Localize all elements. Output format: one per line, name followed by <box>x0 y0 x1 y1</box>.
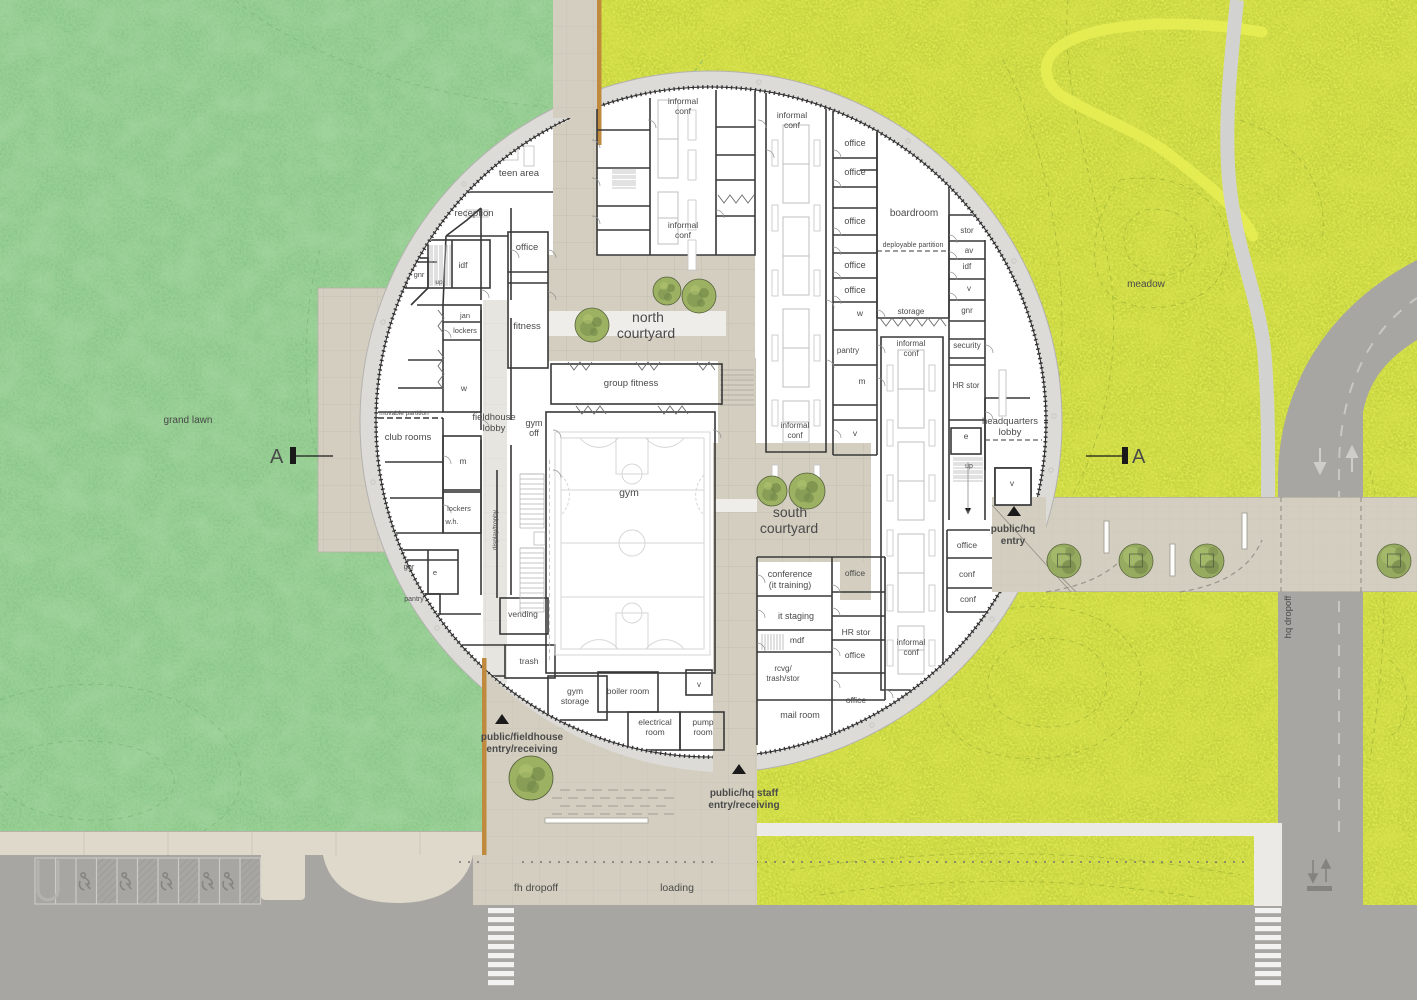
svg-text:lobby: lobby <box>483 423 506 434</box>
svg-text:off: off <box>529 428 539 438</box>
svg-text:fitness: fitness <box>513 321 541 332</box>
svg-text:office: office <box>844 167 865 177</box>
svg-text:room: room <box>645 727 664 737</box>
svg-text:v: v <box>967 284 971 293</box>
svg-text:informal: informal <box>897 339 926 348</box>
svg-text:boiler room: boiler room <box>607 686 650 696</box>
svg-text:south: south <box>773 504 807 520</box>
svg-text:vending: vending <box>508 609 538 619</box>
svg-text:w.h.: w.h. <box>444 517 458 526</box>
svg-text:entry/receiving: entry/receiving <box>708 800 779 811</box>
svg-text:lobby: lobby <box>999 427 1022 438</box>
svg-text:v: v <box>697 680 701 689</box>
svg-text:HR stor: HR stor <box>952 381 979 390</box>
svg-text:conf: conf <box>675 106 692 116</box>
svg-text:office: office <box>516 242 539 253</box>
svg-text:gym: gym <box>619 487 639 499</box>
svg-text:courtyard: courtyard <box>760 520 818 536</box>
svg-text:w: w <box>460 383 468 393</box>
svg-text:display/trophy: display/trophy <box>492 509 499 550</box>
svg-text:conf: conf <box>903 648 919 657</box>
svg-text:pump: pump <box>692 717 714 727</box>
svg-text:(it training): (it training) <box>769 580 812 590</box>
svg-text:room: room <box>693 727 712 737</box>
svg-text:office: office <box>844 216 865 226</box>
svg-text:gym: gym <box>525 418 542 428</box>
svg-text:entry: entry <box>1001 536 1026 547</box>
svg-text:w: w <box>856 308 864 318</box>
svg-text:security: security <box>953 341 981 350</box>
svg-text:office: office <box>845 568 865 578</box>
svg-text:gnr: gnr <box>404 562 415 571</box>
svg-text:jan: jan <box>459 311 470 320</box>
svg-text:av: av <box>965 246 973 255</box>
svg-text:club rooms: club rooms <box>385 432 432 443</box>
svg-text:m: m <box>459 456 466 466</box>
svg-text:headquarters: headquarters <box>982 416 1038 427</box>
svg-text:A: A <box>1132 446 1146 468</box>
svg-text:public/hq staff: public/hq staff <box>710 788 779 799</box>
svg-text:conf: conf <box>675 230 692 240</box>
svg-text:gnr: gnr <box>961 306 973 315</box>
svg-text:rcvg/: rcvg/ <box>774 664 792 673</box>
svg-text:conf: conf <box>784 120 801 130</box>
svg-text:trash: trash <box>520 656 539 666</box>
svg-text:mdf: mdf <box>790 635 805 645</box>
svg-text:up: up <box>965 463 973 470</box>
svg-text:boardroom: boardroom <box>890 208 938 219</box>
svg-text:office: office <box>844 260 865 270</box>
svg-text:m: m <box>858 376 865 386</box>
svg-text:fieldhouse: fieldhouse <box>472 412 515 423</box>
svg-text:fh dropoff: fh dropoff <box>514 882 558 894</box>
svg-text:idf: idf <box>963 262 972 271</box>
svg-text:trash/stor: trash/stor <box>766 674 800 683</box>
svg-text:entry/receiving: entry/receiving <box>486 744 557 755</box>
svg-text:conf: conf <box>960 594 977 604</box>
svg-text:A: A <box>270 446 284 468</box>
svg-text:conf: conf <box>959 569 976 579</box>
svg-text:it staging: it staging <box>778 611 814 621</box>
svg-text:lockers: lockers <box>453 326 477 335</box>
svg-text:storage: storage <box>898 307 925 316</box>
svg-text:loading: loading <box>660 882 694 894</box>
svg-text:reception: reception <box>454 208 493 219</box>
svg-text:storage: storage <box>561 696 590 706</box>
svg-text:conf: conf <box>787 431 803 440</box>
svg-text:conference: conference <box>768 569 813 579</box>
svg-text:electrical: electrical <box>638 717 672 727</box>
svg-text:informal: informal <box>668 96 698 106</box>
svg-text:stor: stor <box>960 226 974 235</box>
svg-text:courtyard: courtyard <box>617 325 675 341</box>
svg-text:conf: conf <box>903 349 919 358</box>
svg-text:meadow: meadow <box>1127 279 1166 290</box>
svg-text:office: office <box>957 540 977 550</box>
svg-text:public/fieldhouse: public/fieldhouse <box>481 732 564 743</box>
svg-text:teen area: teen area <box>499 168 540 179</box>
svg-text:group fitness: group fitness <box>604 378 659 389</box>
svg-text:up: up <box>435 279 443 286</box>
svg-text:e: e <box>964 431 969 441</box>
svg-text:public/hq: public/hq <box>991 524 1035 535</box>
svg-text:informal: informal <box>668 220 698 230</box>
svg-text:grand lawn: grand lawn <box>164 415 213 426</box>
svg-text:office: office <box>845 650 865 660</box>
svg-text:pantry: pantry <box>404 596 424 603</box>
svg-text:north: north <box>632 309 664 325</box>
svg-text:informal: informal <box>781 421 810 430</box>
svg-text:hq dropoff: hq dropoff <box>1283 595 1294 638</box>
svg-text:lockers: lockers <box>447 504 471 513</box>
svg-text:movable partition: movable partition <box>379 410 429 417</box>
svg-text:informal: informal <box>777 110 807 120</box>
svg-text:office: office <box>844 138 865 148</box>
svg-text:e: e <box>433 568 437 577</box>
svg-text:office: office <box>846 695 866 705</box>
svg-text:gym: gym <box>567 686 583 696</box>
svg-text:idf: idf <box>459 260 469 270</box>
svg-text:mail room: mail room <box>780 710 820 720</box>
svg-text:HR stor: HR stor <box>842 627 871 637</box>
svg-text:deployable partition: deployable partition <box>883 242 944 249</box>
svg-text:informal: informal <box>897 638 926 647</box>
svg-text:office: office <box>844 285 865 295</box>
svg-text:gnr: gnr <box>414 270 425 279</box>
svg-text:pantry: pantry <box>837 346 859 355</box>
